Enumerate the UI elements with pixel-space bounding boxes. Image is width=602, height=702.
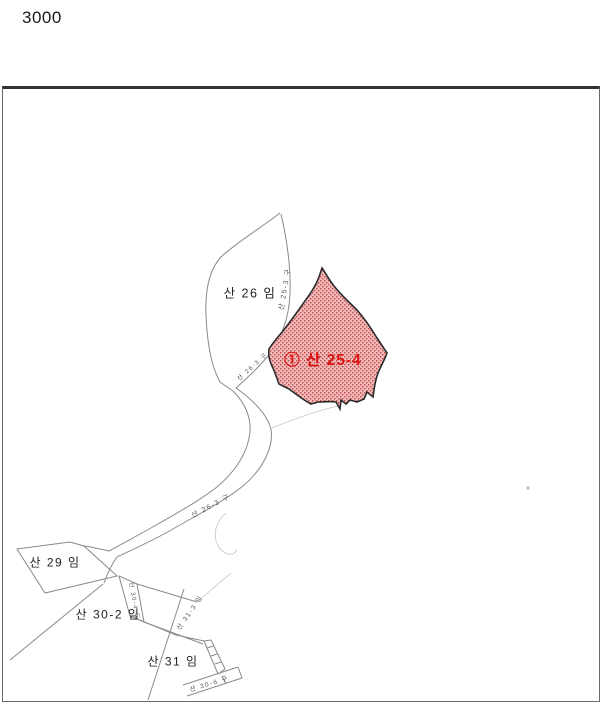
parcel-label-san26: 산 26 임 [224,283,277,302]
parcel-label-san30-2: 산 30-2 임 [76,606,141,623]
map-speck [527,487,530,490]
highlight-parcel-label: ① 산 25-4 [284,348,361,370]
parcel-label-san31: 산 31 임 [147,653,198,670]
parcel-label-san29: 산 29 임 [29,554,80,571]
